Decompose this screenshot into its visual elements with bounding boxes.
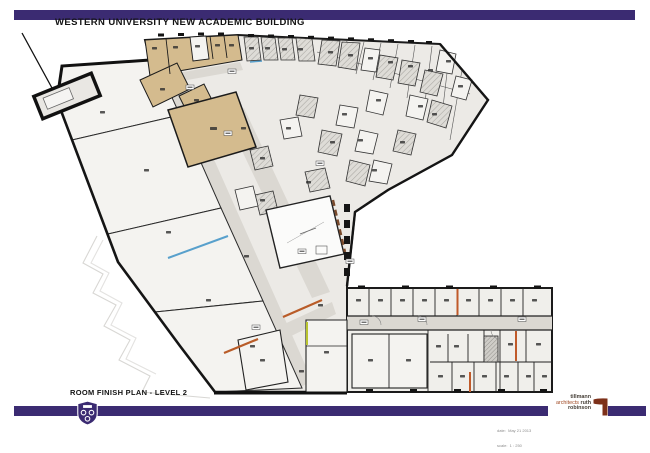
- university-shield-icon: [76, 400, 99, 427]
- architect-logo-text: tillmann architects ruth robinson: [520, 395, 591, 412]
- page-title: WESTERN UNIVERSITY NEW ACADEMIC BUILDING: [55, 17, 305, 28]
- note-scale: scale: 1 : 250: [497, 443, 531, 448]
- firm-line3: robinson: [520, 406, 591, 412]
- room: [190, 36, 209, 61]
- footer-bar-right: [608, 406, 646, 416]
- date-scale-note: date: May 21 2013 scale: 1 : 250: [497, 418, 531, 453]
- plan-title: ROOM FINISH PLAN - LEVEL 2: [70, 388, 187, 397]
- glazing-accent: [250, 61, 262, 62]
- stair-room: [484, 336, 498, 362]
- architect-logo-mark-icon: [593, 397, 608, 416]
- floor-plan-drawing: [0, 0, 650, 433]
- note-date: date: May 21 2013: [497, 428, 531, 433]
